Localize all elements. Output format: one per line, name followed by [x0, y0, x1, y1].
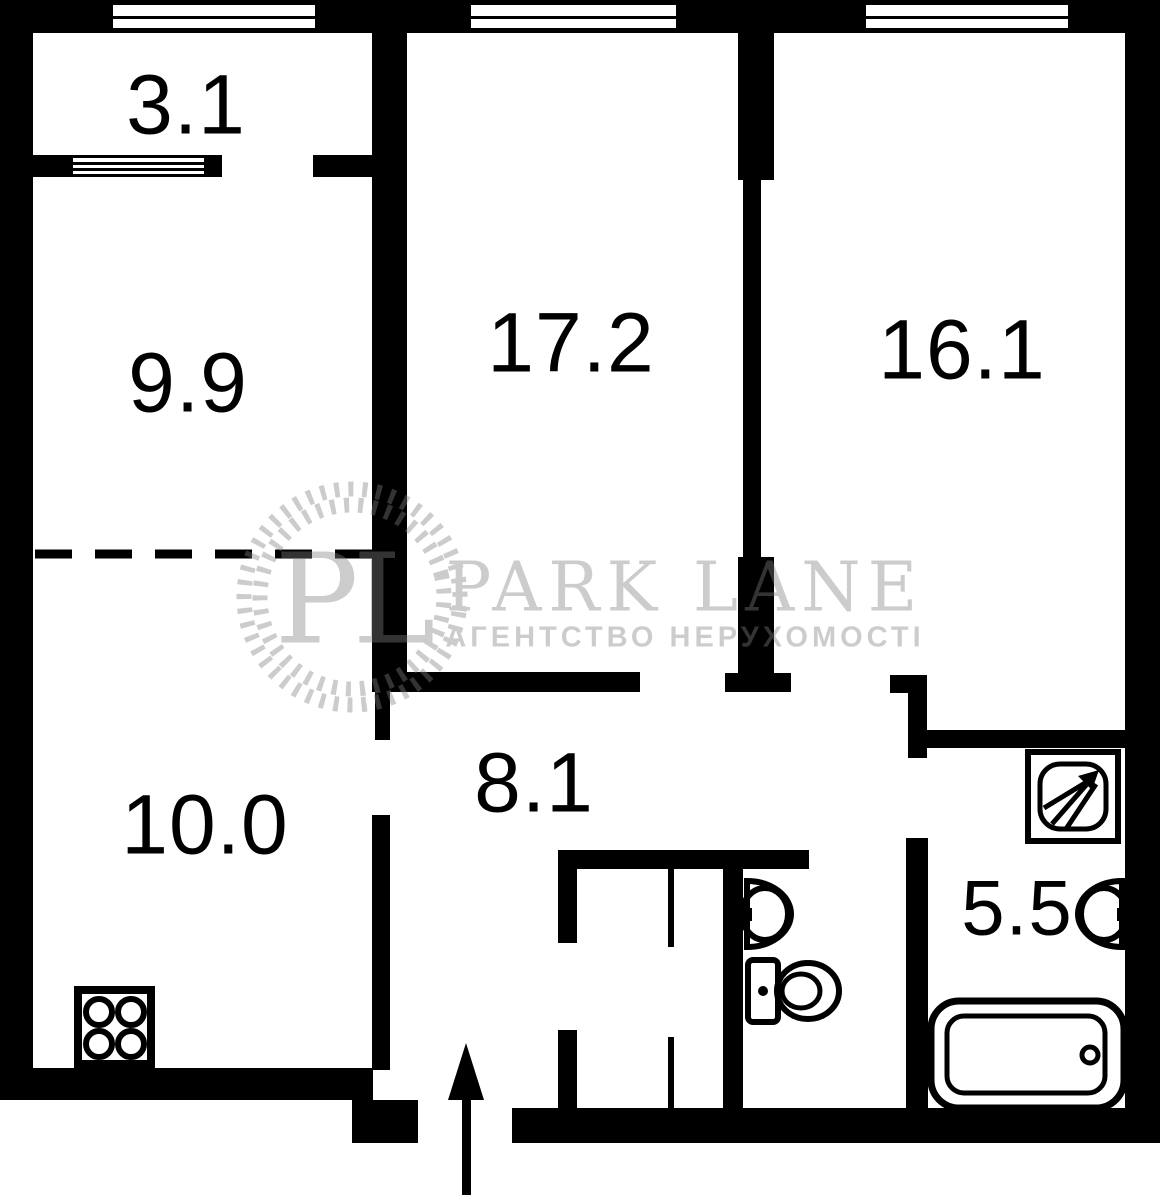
wall-jamb-vert [908, 693, 927, 758]
room-label-balcony: 3.1 [126, 57, 246, 154]
watermark-subtitle: АГЕНТСТВО НЕРУХОМОСТІ [445, 622, 924, 655]
wall-bathroom-top [927, 730, 1125, 748]
wall-left-column [372, 33, 407, 692]
wall-outer-bottom [512, 1108, 1160, 1143]
window-mullion [470, 16, 677, 19]
room-label-room-left: 9.9 [128, 335, 248, 432]
window-icon [468, 2, 679, 31]
wall-livingroom-bottom [372, 672, 640, 692]
room-label-living: 17.2 [487, 295, 655, 392]
wall-divider-mid [738, 557, 774, 673]
window-mullion [865, 16, 1069, 19]
room-label-bathroom: 5.5 [961, 863, 1072, 954]
window-icon [110, 2, 318, 31]
window-icon [70, 155, 207, 177]
wall-balcony-seg [33, 155, 70, 177]
wall-balcony-seg [313, 155, 372, 177]
wall-entry-step [352, 1100, 418, 1143]
floor-plan: 3.1 9.9 17.2 16.1 10.0 8.1 5.5 PL PARK L… [0, 0, 1160, 1200]
stove-icon [78, 990, 151, 1064]
room-label-room-right: 16.1 [878, 302, 1046, 399]
wall-closet-left-upper [558, 852, 577, 943]
window-mullion [72, 168, 205, 171]
wall-closet-partition-upper [668, 869, 674, 947]
wall-outer-right [1125, 33, 1160, 1143]
wall-bathroom-left [906, 838, 928, 1110]
sink-icon [742, 881, 791, 947]
wall-closet-left-lower [558, 1030, 577, 1108]
wall-jamb-stub [890, 675, 927, 693]
wall-balcony-seg [207, 155, 222, 177]
wall-outer-left [0, 33, 33, 1100]
wall-closet-partition-lower [668, 1037, 674, 1108]
wall-divider-thin [743, 180, 761, 557]
wall-wc-left [723, 867, 743, 1108]
shower-icon [1028, 752, 1118, 841]
entrance-arrow-icon [448, 1043, 484, 1195]
window-icon [863, 2, 1071, 31]
room-label-hallway: 8.1 [474, 735, 594, 832]
wall-corridor-left [372, 815, 390, 1070]
bathtub-icon [931, 1001, 1124, 1108]
wall-wc-top [558, 850, 809, 869]
toilet-icon [748, 960, 839, 1022]
window-mullion [72, 162, 205, 165]
wall-divider-top [738, 33, 774, 180]
wall-left-column-stub [375, 692, 390, 740]
room-label-kitchen: 10.0 [121, 777, 289, 874]
wall-divider-foot [725, 673, 791, 692]
watermark-brand: PARK LANE [446, 549, 925, 628]
window-mullion [112, 16, 316, 19]
watermark: PL PARK LANE АГЕНТСТВО НЕРУХОМОСТІ [0, 0, 1160, 1200]
sink-icon [1078, 881, 1127, 947]
wall-kitchen-bottom [0, 1068, 373, 1100]
